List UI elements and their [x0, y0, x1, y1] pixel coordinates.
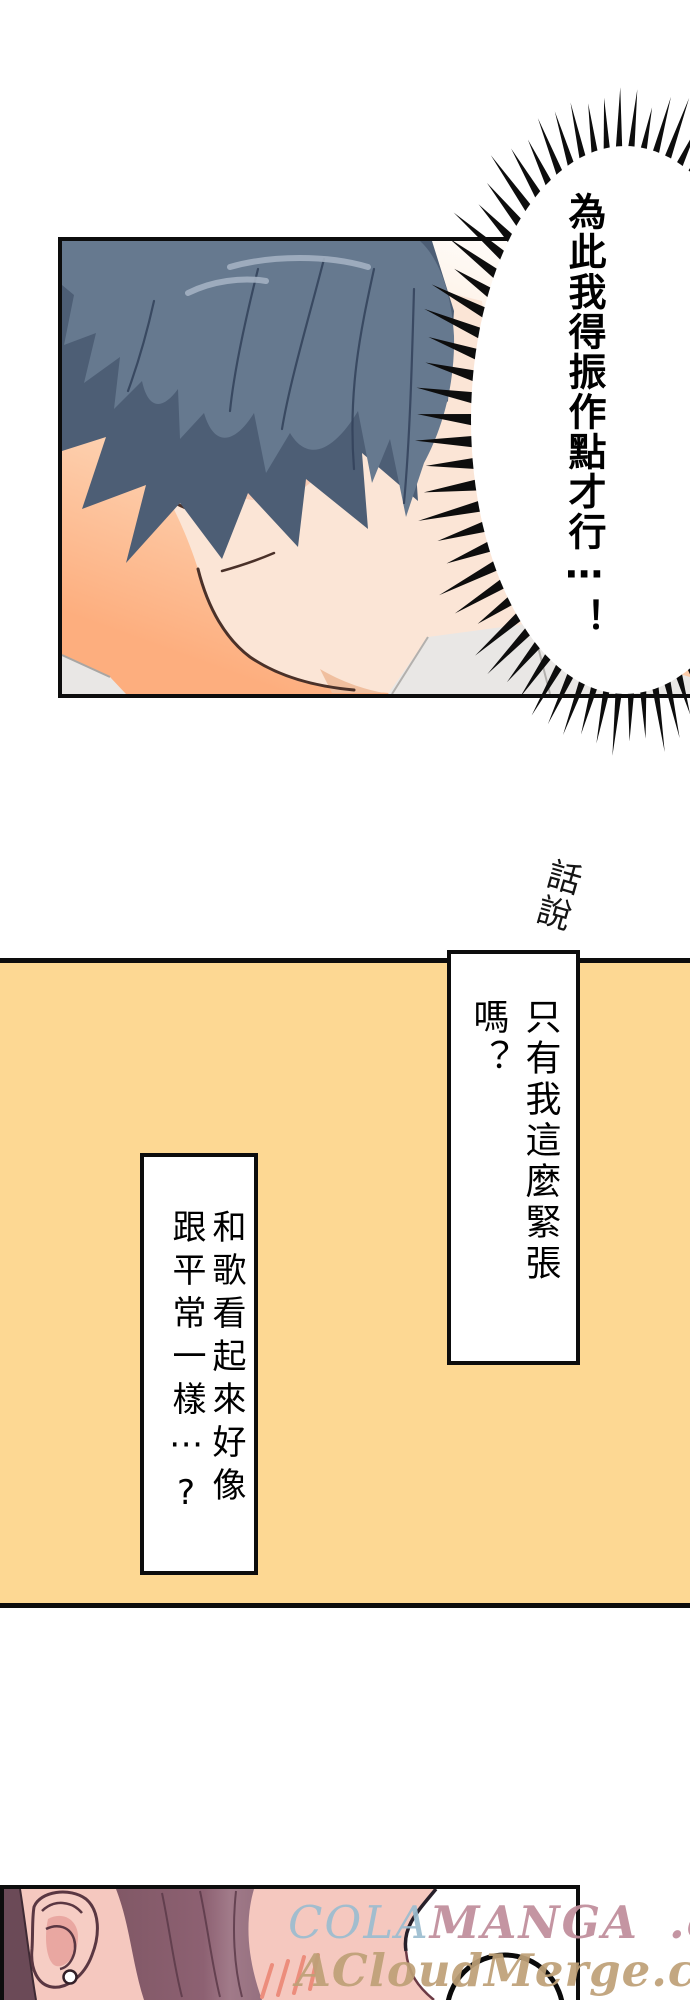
watermark-manga: MANGA [430, 1896, 639, 1949]
panel-monologue [0, 958, 690, 1608]
earring [64, 1971, 77, 1984]
speech-box-left-text: 和歌看起來好像 跟平常一樣⋯? [166, 1209, 246, 1571]
watermark-colamanga: COLAMANGA.com [288, 1896, 690, 1949]
aside-text: 話說 [523, 853, 590, 938]
watermark-acloudmerge: ACloudMerge.com [296, 1944, 690, 1997]
speech-box-right: 只有我這麼緊張嗎？ [447, 950, 580, 1365]
shout-bubble [415, 80, 690, 760]
watermark-cola: COLA [288, 1896, 430, 1949]
speech-box-left: 和歌看起來好像 跟平常一樣⋯? [140, 1153, 258, 1575]
speech-box-right-text: 只有我這麼緊張嗎？ [462, 998, 566, 1361]
watermark-dotcom: .com [669, 1896, 690, 1949]
manga-page: 為此我得振作點才行⋯！ 話說 只有我這麼緊張嗎？ 和歌看起來好像 跟平常一樣⋯? [0, 0, 690, 2000]
shout-bubble-text: 為此我得振作點才行⋯！ [560, 192, 608, 662]
